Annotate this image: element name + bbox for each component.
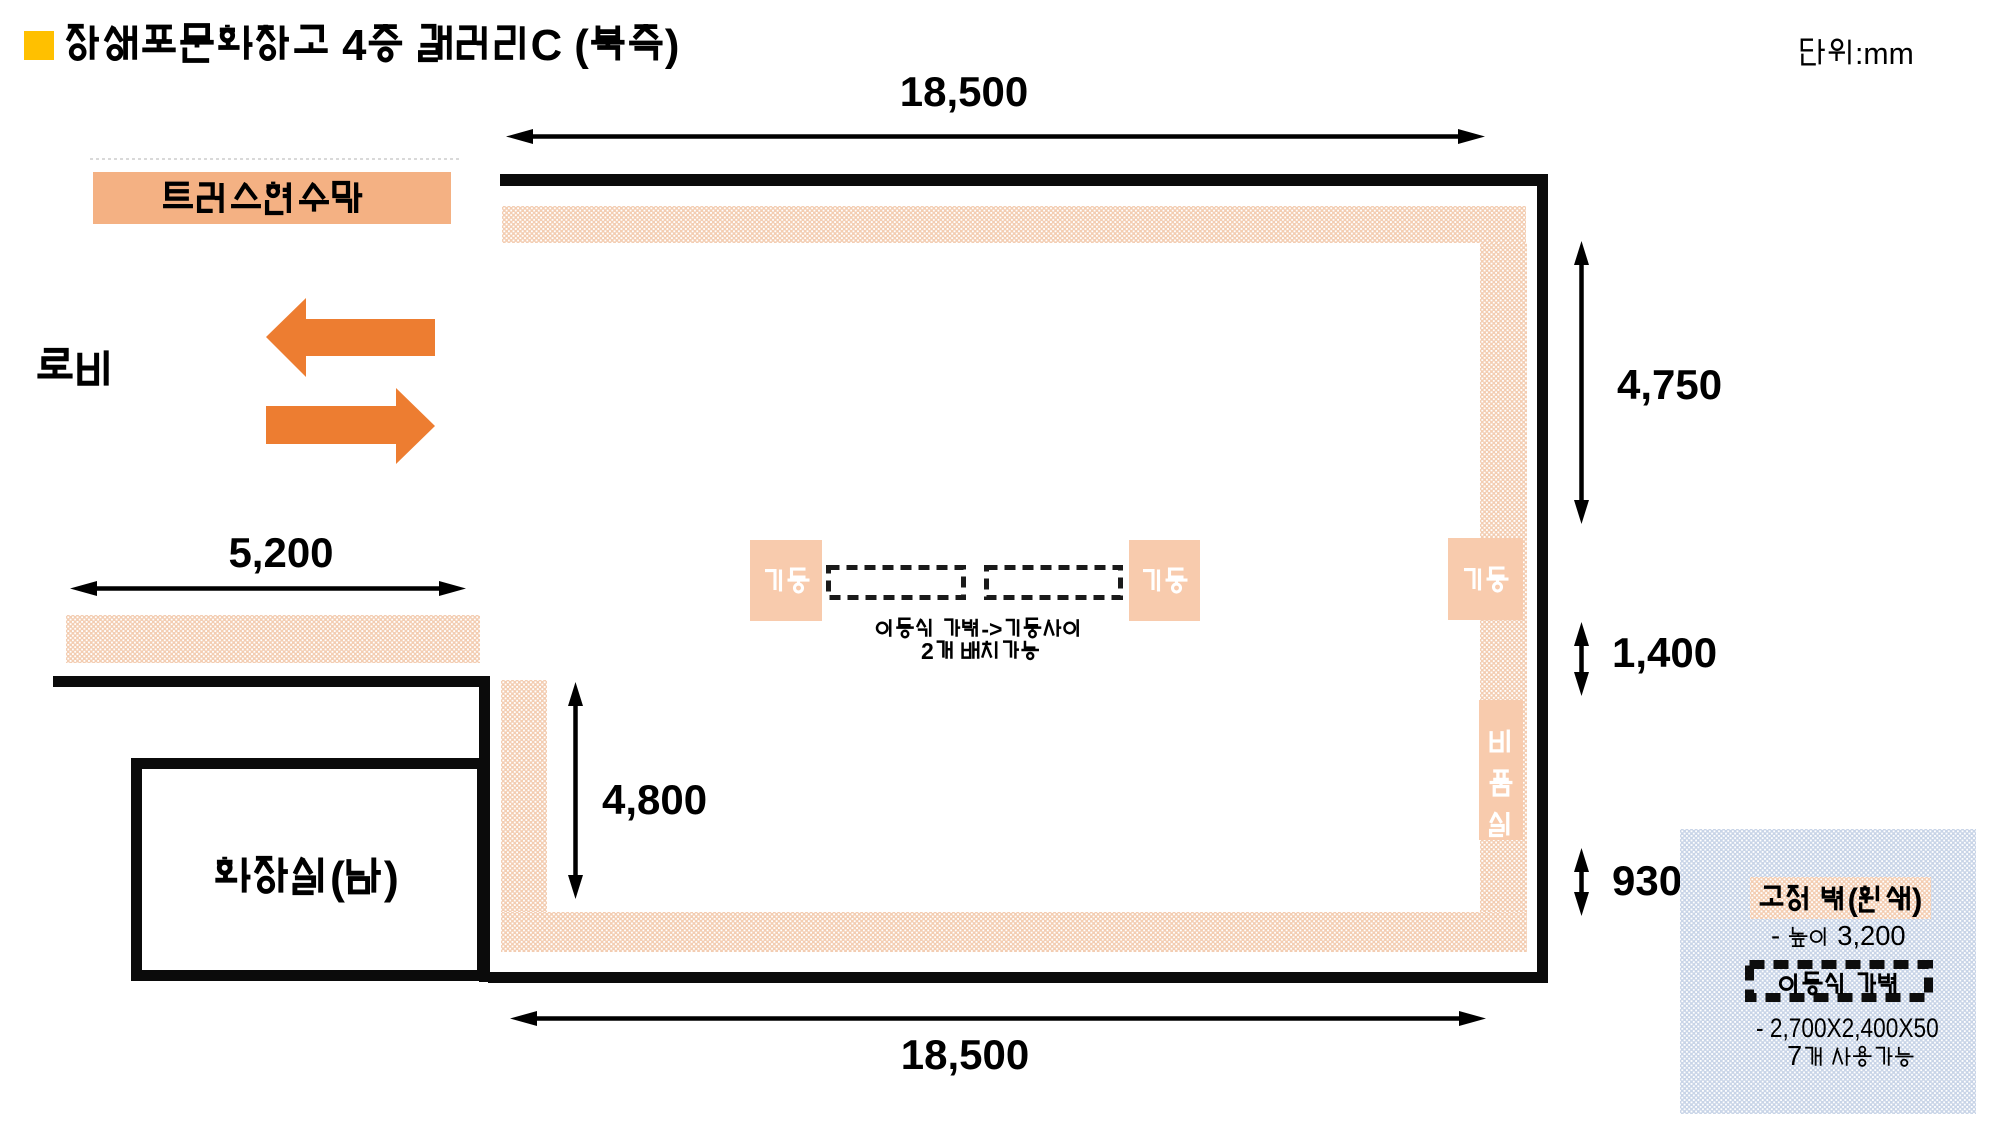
svg-text:->: ->	[982, 616, 1003, 642]
svg-text:4: 4	[342, 21, 367, 70]
svg-text:): )	[665, 21, 680, 70]
svg-text:(: (	[330, 852, 345, 903]
svg-text:7: 7	[1787, 1039, 1802, 1070]
svg-text:C: C	[531, 21, 563, 70]
svg-text:3,200: 3,200	[1837, 919, 1905, 950]
svg-text:): )	[384, 852, 399, 903]
svg-text:2: 2	[921, 638, 934, 664]
svg-text::mm: :mm	[1855, 38, 1914, 71]
svg-text:(: (	[1847, 882, 1858, 917]
svg-text:): )	[1912, 882, 1922, 917]
svg-text:-: -	[1771, 919, 1780, 950]
svg-text:- 2,700X2,400X50: - 2,700X2,400X50	[1756, 1012, 1939, 1042]
svg-text:(: (	[574, 21, 589, 70]
